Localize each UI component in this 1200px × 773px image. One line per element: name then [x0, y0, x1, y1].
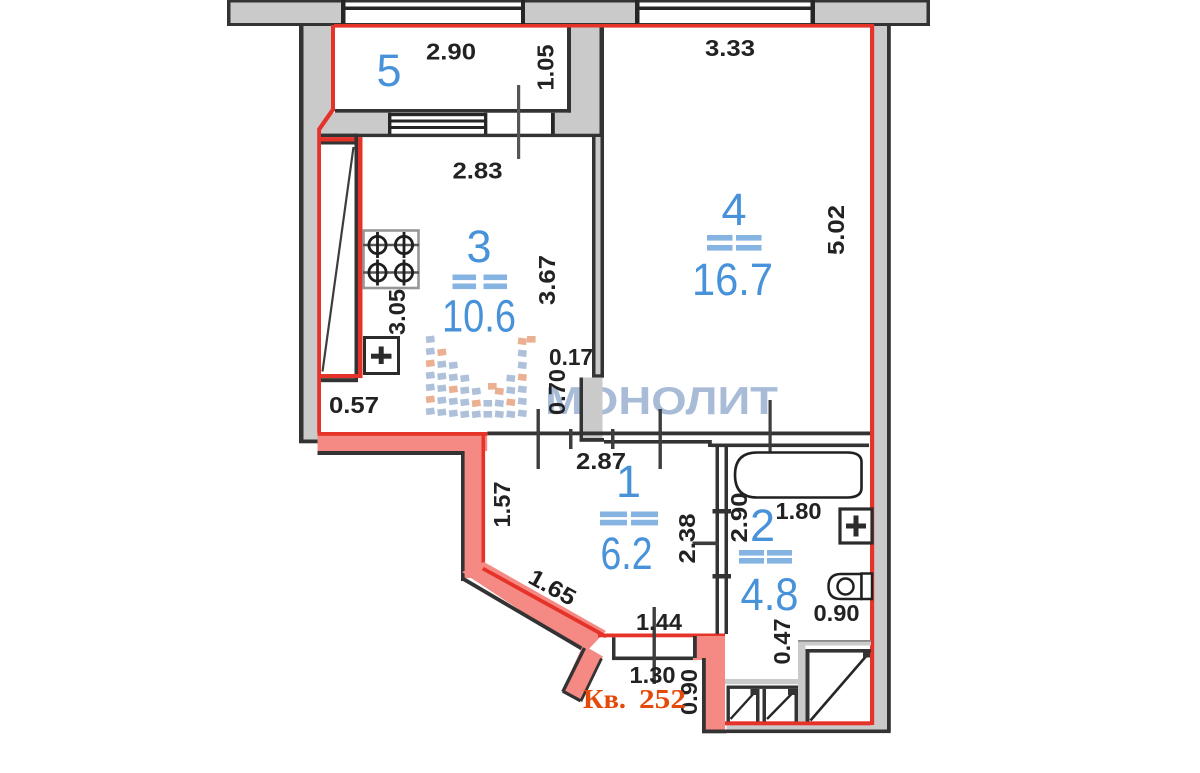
svg-text:5: 5 [376, 45, 401, 96]
svg-text:3.33: 3.33 [705, 35, 755, 61]
svg-text:2.38: 2.38 [674, 513, 700, 563]
svg-text:16.7: 16.7 [692, 254, 773, 305]
svg-text:0.57: 0.57 [329, 392, 379, 418]
svg-text:4.8: 4.8 [741, 569, 799, 620]
svg-text:1.44: 1.44 [636, 609, 682, 635]
svg-text:0.17: 0.17 [549, 344, 593, 370]
svg-text:3.05: 3.05 [384, 289, 410, 335]
svg-text:3.67: 3.67 [534, 255, 560, 305]
svg-text:2.90: 2.90 [726, 493, 752, 543]
svg-text:1.57: 1.57 [489, 482, 515, 528]
svg-text:3: 3 [466, 221, 491, 272]
svg-text:0.47: 0.47 [769, 619, 795, 665]
svg-text:2.83: 2.83 [453, 158, 503, 184]
svg-text:0.70: 0.70 [544, 369, 570, 415]
svg-text:1.05: 1.05 [533, 44, 559, 90]
svg-text:4: 4 [721, 184, 746, 235]
svg-text:0.90: 0.90 [814, 600, 860, 626]
svg-text:5.02: 5.02 [823, 205, 849, 255]
svg-text:Кв.: Кв. [583, 684, 626, 714]
svg-text:1.80: 1.80 [776, 498, 822, 524]
svg-text:252: 252 [639, 684, 686, 714]
svg-text:2: 2 [750, 500, 775, 551]
svg-text:2.87: 2.87 [576, 448, 626, 474]
svg-text:2.90: 2.90 [426, 39, 476, 65]
svg-text:6.2: 6.2 [601, 528, 653, 579]
svg-text:10.6: 10.6 [442, 291, 516, 342]
